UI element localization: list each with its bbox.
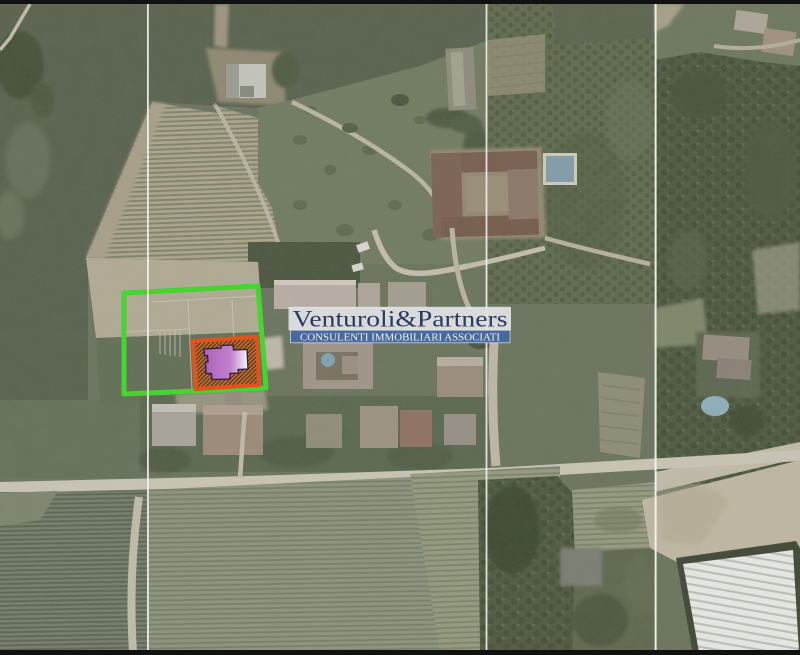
svg-text:CONSULENTI IMMOBILIARI ASSOCIA: CONSULENTI IMMOBILIARI ASSOCIATI bbox=[300, 332, 500, 343]
svg-text:Venturoli&Partners: Venturoli&Partners bbox=[293, 307, 508, 333]
